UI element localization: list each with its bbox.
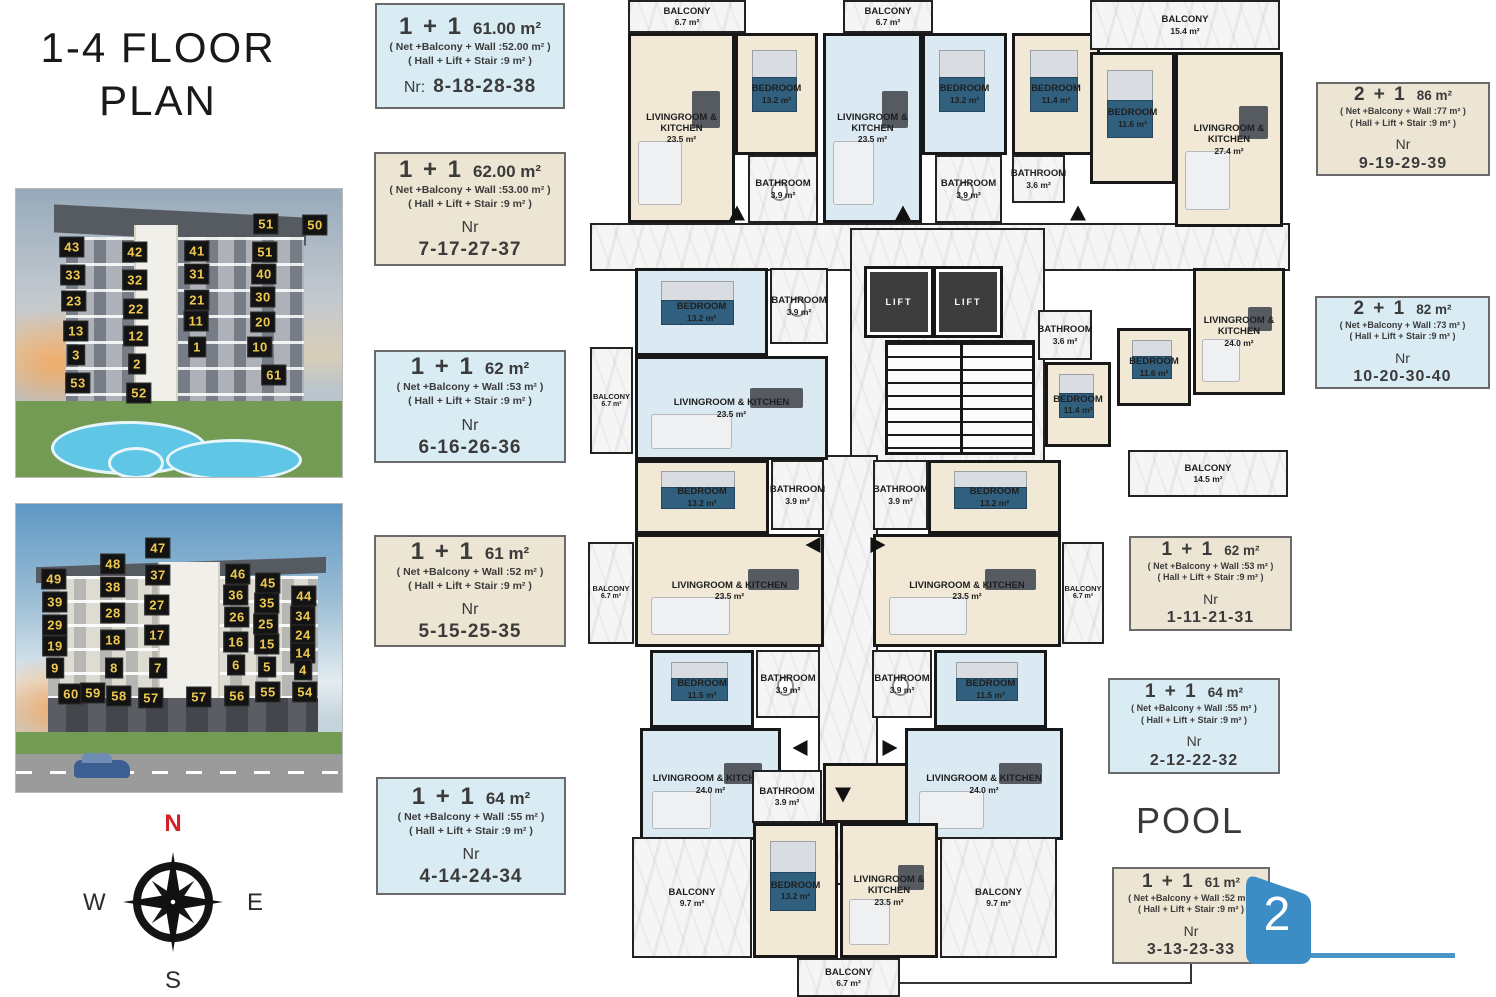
room-label: BATHROOM3.9 m²	[875, 462, 926, 528]
direction-arrow-down	[835, 788, 851, 803]
toilet-icon	[789, 297, 806, 317]
room-bedroom: BEDROOM13.2 m²	[635, 268, 768, 356]
direction-arrow-right	[883, 740, 898, 756]
direction-arrow-left	[793, 740, 808, 756]
bed-icon	[954, 471, 1027, 508]
toilet-icon	[957, 181, 974, 201]
room-livingroom-kitchen: LIVINGROOM & KITCHEN23.5 m²	[635, 356, 828, 460]
boundary-line	[900, 982, 1192, 984]
bed-icon	[956, 662, 1018, 701]
room-balcony: BALCONY9.7 m²	[940, 837, 1057, 958]
room-livingroom-kitchen: LIVINGROOM & KITCHEN23.5 m²	[628, 33, 735, 223]
room-bedroom: BEDROOM11.4 m²	[1045, 362, 1111, 447]
floor-plan-sheet: 1-4 FLOOR PLAN 5150434241513332314023222…	[0, 0, 1496, 997]
room-label: BALCONY6.7 m²	[799, 960, 898, 995]
room-bedroom: BEDROOM13.2 m²	[753, 823, 838, 958]
room-bedroom: BEDROOM11.5 m²	[934, 650, 1047, 728]
unit-card: 1 + 164 m² ( Net +Balcony + Wall :55 m² …	[376, 777, 566, 895]
bed-icon	[1132, 340, 1172, 379]
room-bathroom: BATHROOM3.9 m²	[771, 460, 824, 530]
dining-table-icon	[748, 569, 799, 590]
unit-card: 1 + 161 m² ( Net +Balcony + Wall :52 m² …	[374, 535, 566, 647]
bed-icon	[1030, 50, 1078, 112]
bed-icon	[752, 50, 797, 112]
unit-card: 2 + 186 m² ( Net +Balcony + Wall :77 m² …	[1316, 82, 1490, 176]
sofa-icon	[1185, 151, 1230, 210]
room-label: BATHROOM3.9 m²	[754, 772, 820, 821]
room-label: BALCONY6.7 m²	[590, 544, 632, 642]
direction-arrow-left	[806, 537, 821, 553]
room-balcony: BALCONY6.7 m²	[843, 0, 933, 33]
room-label: LIFT	[939, 272, 997, 332]
dining-table-icon	[985, 569, 1036, 590]
direction-arrow-up	[729, 206, 745, 221]
room-label: LIFT	[870, 272, 928, 332]
room-label: BALCONY6.7 m²	[592, 349, 631, 452]
room-balcony: BALCONY6.7 m²	[1062, 542, 1104, 644]
bed-icon	[770, 841, 816, 910]
room-label: BATHROOM3.6 m²	[1014, 157, 1063, 201]
room-label: BATHROOM3.6 m²	[1040, 312, 1090, 358]
room-bedroom: BEDROOM11.4 m²	[1012, 33, 1100, 155]
sofa-icon	[849, 899, 890, 945]
room-livingroom-kitchen: LIVINGROOM & KITCHEN23.5 m²	[840, 823, 938, 958]
room-bathroom: BATHROOM3.9 m²	[873, 460, 928, 530]
room-label: BALCONY6.7 m²	[845, 2, 931, 31]
dining-table-icon	[1248, 307, 1272, 331]
room-balcony: BALCONY6.7 m²	[628, 0, 746, 33]
dining-table-icon	[898, 865, 924, 891]
unit-card: 1 + 164 m² ( Net +Balcony + Wall :55 m² …	[1108, 678, 1280, 774]
room-bedroom: BEDROOM11.6 m²	[1117, 328, 1191, 406]
room-bathroom: BATHROOM3.9 m²	[756, 650, 820, 718]
sofa-icon	[638, 141, 682, 206]
sofa-icon	[889, 597, 967, 635]
toilet-icon	[892, 676, 909, 696]
logo-badge: 2	[1240, 873, 1314, 973]
room-lift: LIFT	[939, 272, 997, 332]
room-stairs	[885, 340, 1035, 455]
room-label: BALCONY9.7 m²	[634, 839, 750, 956]
room-balcony: BALCONY6.7 m²	[590, 347, 633, 454]
sofa-icon	[1202, 339, 1240, 382]
bed-icon	[1059, 374, 1095, 417]
room-bathroom: BATHROOM3.9 m²	[872, 650, 932, 718]
room-livingroom-kitchen: LIVINGROOM & KITCHEN23.5 m²	[635, 534, 824, 647]
bed-icon	[1107, 70, 1153, 138]
direction-arrow-right	[871, 537, 886, 553]
unit-card: 1 + 162 m² ( Net +Balcony + Wall :53 m² …	[1129, 536, 1292, 631]
room-bedroom: BEDROOM13.2 m²	[735, 33, 818, 155]
dining-table-icon	[750, 388, 802, 408]
dining-table-icon	[999, 763, 1042, 784]
room-bedroom: BEDROOM13.2 m²	[635, 460, 769, 534]
room-bedroom: BEDROOM11.6 m²	[1090, 52, 1175, 184]
pool-label: POOL	[1130, 800, 1250, 842]
room-bedroom: BEDROOM13.2 m²	[922, 33, 1007, 155]
toilet-icon	[777, 676, 794, 696]
room-livingroom-kitchen: LIVINGROOM & KITCHEN24.0 m²	[1193, 268, 1285, 395]
room-livingroom-kitchen: LIVINGROOM & KITCHEN27.4 m²	[1175, 52, 1283, 227]
room-label: BALCONY6.7 m²	[1064, 544, 1102, 642]
room-label: BALCONY6.7 m²	[630, 2, 744, 31]
bed-icon	[939, 50, 985, 112]
room-bathroom: BATHROOM3.9 m²	[935, 155, 1002, 223]
room-bathroom: BATHROOM3.6 m²	[1012, 155, 1065, 203]
direction-arrow-up	[895, 206, 911, 221]
room-bathroom: BATHROOM3.9 m²	[748, 155, 818, 223]
room-label: BALCONY15.4 m²	[1092, 2, 1278, 48]
unit-card: 1 + 161.00 m² ( Net +Balcony + Wall :52.…	[375, 3, 565, 109]
logo-badge-number: 2	[1240, 887, 1314, 942]
sofa-icon	[651, 414, 732, 449]
dining-table-icon	[882, 91, 908, 128]
room-balcony: BALCONY6.7 m²	[588, 542, 634, 644]
room-bathroom: BATHROOM3.9 m²	[752, 770, 822, 823]
room-bathroom: BATHROOM3.9 m²	[770, 268, 828, 344]
room-livingroom-kitchen: LIVINGROOM & KITCHEN23.5 m²	[873, 534, 1061, 647]
room-livingroom-kitchen: LIVINGROOM & KITCHEN23.5 m²	[823, 33, 922, 223]
sofa-icon	[833, 141, 874, 206]
bed-icon	[661, 471, 735, 508]
room-label: BALCONY9.7 m²	[942, 839, 1055, 956]
unit-card: 1 + 162 m² ( Net +Balcony + Wall :53 m² …	[374, 350, 566, 463]
bed-icon	[671, 662, 728, 701]
room-label: BALCONY14.5 m²	[1130, 452, 1286, 495]
unit-card: 2 + 182 m² ( Net +Balcony + Wall :73 m² …	[1315, 296, 1490, 389]
room-balcony: BALCONY14.5 m²	[1128, 450, 1288, 497]
room-balcony: BALCONY15.4 m²	[1090, 0, 1280, 50]
boundary-line	[1190, 962, 1192, 984]
room-balcony: BALCONY9.7 m²	[632, 837, 752, 958]
dining-table-icon	[692, 91, 720, 128]
room-lift: LIFT	[870, 272, 928, 332]
floor-plan: BALCONY6.7 m²LIVINGROOM & KITCHEN23.5 m²…	[0, 0, 1496, 997]
room-balcony: BALCONY6.7 m²	[797, 958, 900, 997]
room-bedroom: BEDROOM13.2 m²	[928, 460, 1061, 534]
toilet-icon	[771, 181, 788, 201]
room-bedroom: BEDROOM11.5 m²	[650, 650, 754, 728]
dining-table-icon	[1239, 106, 1268, 140]
bed-icon	[661, 281, 734, 326]
room-label: BATHROOM3.9 m²	[773, 462, 822, 528]
sofa-icon	[651, 597, 730, 635]
unit-card: 1 + 162.00 m² ( Net +Balcony + Wall :53.…	[374, 152, 566, 266]
direction-arrow-up	[1070, 206, 1086, 221]
room-bathroom: BATHROOM3.6 m²	[1038, 310, 1092, 360]
sofa-icon	[652, 791, 711, 829]
